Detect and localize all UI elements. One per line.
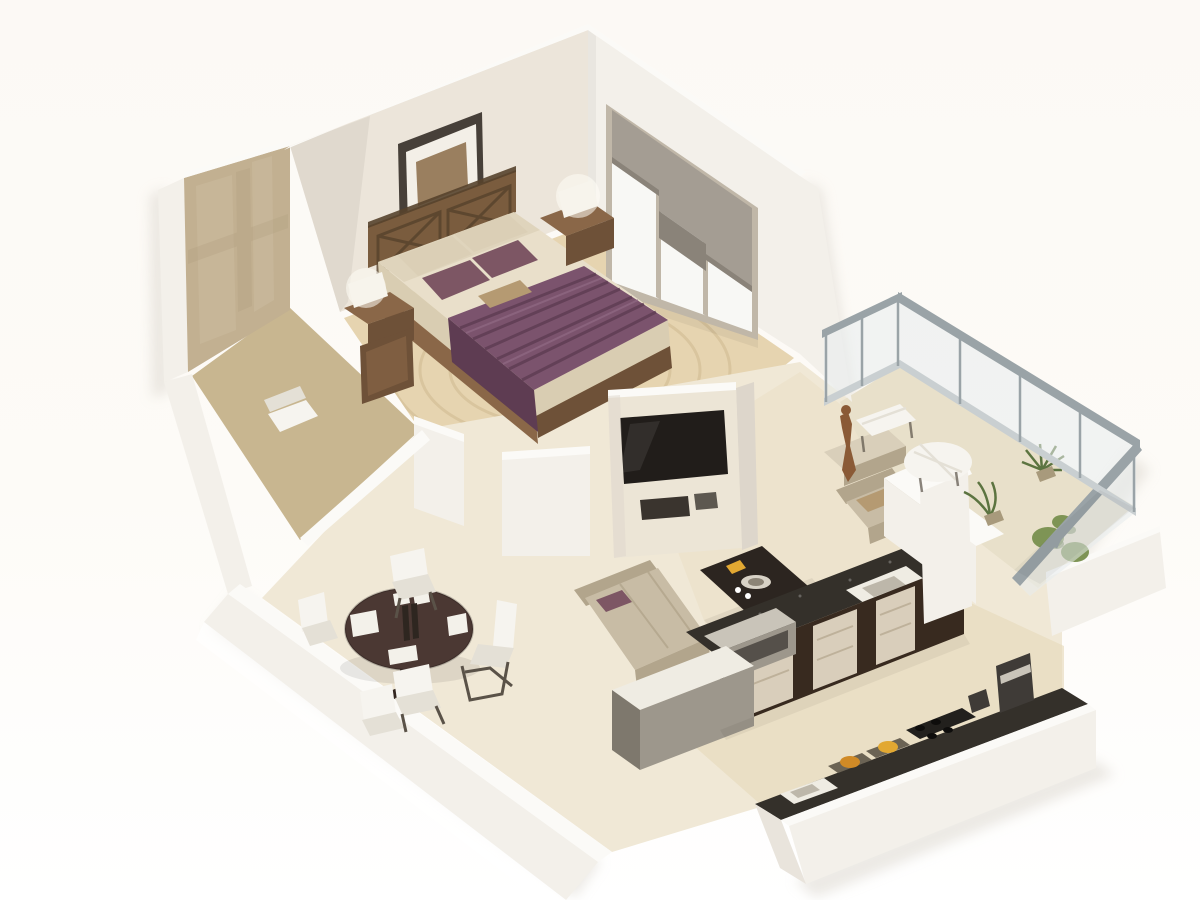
floorplan-stage: 3D isometric cutaway rendering of a one-… xyxy=(0,0,1200,900)
placemat xyxy=(447,613,468,636)
kitchen-wall-column xyxy=(920,472,972,624)
tv-unit xyxy=(608,382,758,558)
wall-segment xyxy=(502,452,590,556)
food-items xyxy=(840,756,860,768)
media-box xyxy=(640,496,690,520)
floorplan-render: 3D isometric cutaway rendering of a one-… xyxy=(0,0,1200,900)
dining-chair xyxy=(493,600,517,650)
media-box xyxy=(694,492,718,510)
food-items xyxy=(878,741,898,753)
